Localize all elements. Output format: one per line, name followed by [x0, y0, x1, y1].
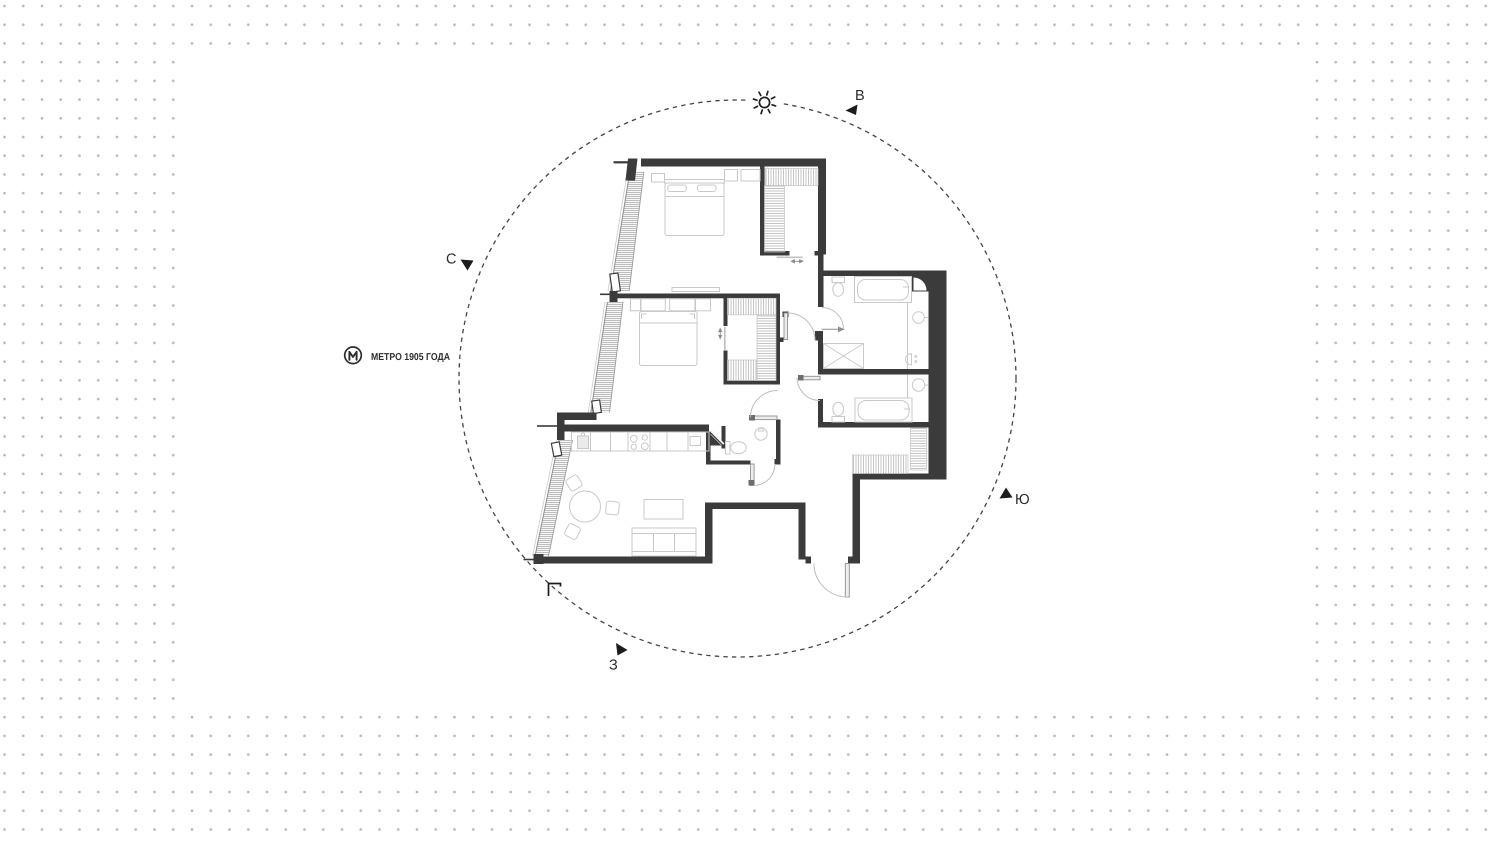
svg-text:В: В [855, 88, 865, 104]
svg-text:З: З [609, 658, 618, 674]
svg-text:С: С [446, 252, 456, 268]
svg-text:МЕТРО 1905 ГОДА: МЕТРО 1905 ГОДА [371, 352, 450, 363]
svg-text:Ю: Ю [1015, 492, 1030, 508]
